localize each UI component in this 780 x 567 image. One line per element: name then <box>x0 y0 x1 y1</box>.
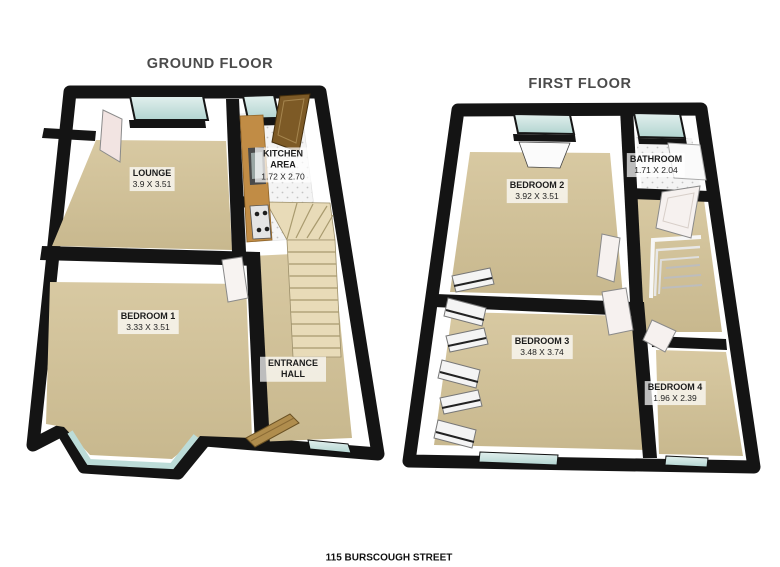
bathroom-window <box>634 113 685 138</box>
ground-floor-title: GROUND FLOOR <box>147 56 273 72</box>
floorplan-canvas: GROUND FLOOR FIRST FLOOR LOUNGE 3.9 X 3.… <box>0 0 780 567</box>
room-name: LOUNGE <box>133 168 172 179</box>
room-name: BEDROOM 3 <box>515 336 570 347</box>
first-floor-title: FIRST FLOOR <box>528 76 631 92</box>
room-dims: 1.96 X 2.39 <box>648 393 703 404</box>
room-label-bedroom1: BEDROOM 1 3.33 X 3.51 <box>118 310 179 334</box>
room-dims: 3.92 X 3.51 <box>510 191 565 202</box>
room-label-entrance-hall: ENTRANCE HALL <box>260 357 326 382</box>
lounge-window <box>130 96 208 120</box>
room-label-bathroom: BATHROOM 1.71 X 2.04 <box>627 153 685 177</box>
room-label-lounge: LOUNGE 3.9 X 3.51 <box>130 167 175 191</box>
lounge-window-sill <box>129 120 206 128</box>
stove-burner <box>255 212 260 217</box>
room-name: KITCHEN AREA <box>258 148 308 171</box>
room-label-bedroom2: BEDROOM 2 3.92 X 3.51 <box>507 179 568 203</box>
room-name: BATHROOM <box>630 154 682 165</box>
bedroom4-window <box>665 456 708 467</box>
kitchen-stove <box>250 205 271 239</box>
room-name: BEDROOM 4 <box>648 382 703 393</box>
room-name: ENTRANCE HALL <box>263 358 323 381</box>
room-dims: 3.33 X 3.51 <box>121 322 176 333</box>
bedroom2-window-sill <box>513 134 576 142</box>
room-label-kitchen-area: KITCHEN AREA 1.72 X 2.70 <box>255 147 311 182</box>
room-dims: 3.9 X 3.51 <box>133 179 172 190</box>
stairs-flight <box>287 240 341 357</box>
room-label-bedroom4: BEDROOM 4 1.96 X 2.39 <box>645 381 706 405</box>
room-name: BEDROOM 1 <box>121 311 176 322</box>
room-dims: 3.48 X 3.74 <box>515 347 570 358</box>
stove-burner <box>257 228 262 233</box>
bedroom1-floor <box>46 282 252 459</box>
room-label-bedroom3: BEDROOM 3 3.48 X 3.74 <box>512 335 573 359</box>
stove-burner <box>263 211 268 216</box>
room-name: BEDROOM 2 <box>510 180 565 191</box>
stove-burner <box>265 227 270 232</box>
floorplan-drawing <box>0 0 780 567</box>
bedroom2-window <box>514 114 574 134</box>
room-dims: 1.71 X 2.04 <box>630 165 682 176</box>
first-floor-plan <box>409 109 754 467</box>
room-dims: 1.72 X 2.70 <box>258 171 308 182</box>
address-caption: 115 BURSCOUGH STREET <box>326 553 453 564</box>
ground-floor-plan <box>33 92 378 473</box>
